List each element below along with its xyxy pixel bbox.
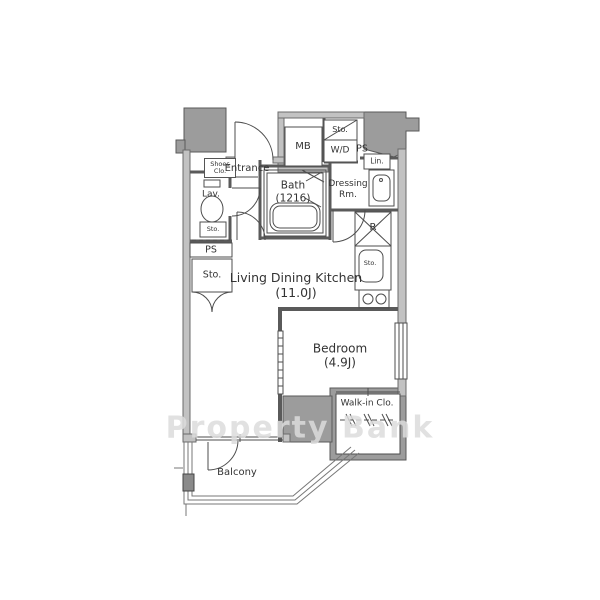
floor-plan: Property Bank Shoes Clo. Entrance MB Sto… (0, 0, 600, 600)
floor-plan-drawing (0, 0, 600, 600)
dressing-room-line2: Rm. (339, 190, 357, 200)
bedroom-size: (4.9J) (324, 356, 356, 370)
lavatory-label: Lav. (202, 190, 220, 201)
ldk-size: (11.0J) (275, 285, 316, 300)
pipe-space-left-label: PS (205, 244, 217, 255)
dressing-room-label: Dressing Rm. (328, 179, 367, 201)
bath-size: (1216) (276, 192, 311, 204)
bathtub (270, 203, 320, 231)
ldk-label: Living Dining Kitchen (11.0J) (230, 270, 362, 300)
lavatory-door (232, 188, 260, 216)
dressing-room-door (333, 210, 365, 242)
bedroom-name: Bedroom (313, 342, 367, 356)
entrance-door (235, 122, 273, 160)
storage-toilet-label: Sto. (207, 226, 220, 234)
storage-over-wd-label: Sto. (332, 125, 348, 135)
balcony-label: Balcony (217, 467, 257, 479)
stove-burner (363, 294, 373, 304)
bath-name: Bath (281, 179, 305, 191)
stove-burner (376, 294, 386, 304)
bedroom-sliding-door (278, 331, 283, 394)
wall-left (183, 150, 190, 442)
washbasin (369, 170, 394, 206)
storage-hall-label: Sto. (203, 269, 221, 280)
walk-in-closet-label: Walk-in Clo. (341, 399, 394, 410)
pipe-space-top-label: PS (356, 143, 368, 154)
pillar-top-left (184, 108, 226, 152)
wall-right-lower (398, 379, 406, 396)
washer-dryer-label: W/D (331, 146, 350, 157)
storage-kitchen-label: Sto. (364, 260, 377, 268)
refrigerator-label: R (370, 222, 377, 234)
bedroom-label: Bedroom (4.9J) (313, 342, 367, 371)
wall-right-upper (398, 149, 406, 323)
wall-porch-right (273, 157, 284, 163)
bath-label: Bath (1216) (276, 179, 311, 204)
balcony-drain (183, 474, 194, 491)
linen-label: Lin. (370, 157, 383, 166)
ldk-name: Living Dining Kitchen (230, 270, 362, 285)
meter-box-label: MB (295, 141, 311, 153)
wall-mb-left (278, 118, 284, 172)
pillar-top-right (364, 112, 419, 157)
watermark: Property Bank (166, 411, 435, 446)
wall-top (278, 112, 364, 118)
dressing-room-line1: Dressing (328, 179, 367, 189)
storage-double-doors (192, 292, 232, 312)
entrance-label: Entrance (225, 163, 270, 175)
bedroom-window (395, 323, 407, 379)
